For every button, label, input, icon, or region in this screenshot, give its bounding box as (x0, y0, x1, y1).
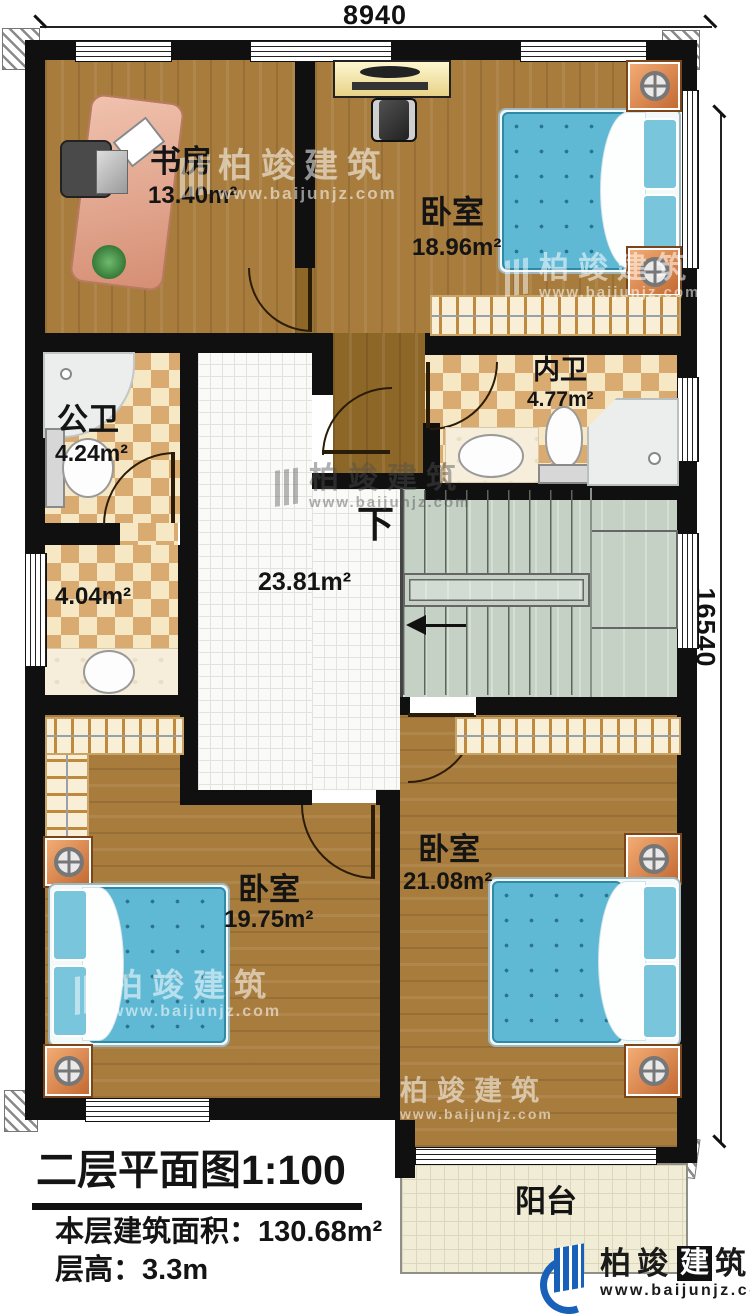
title-underline (32, 1203, 362, 1210)
nightstand (45, 1046, 91, 1096)
nightstand-knob (54, 1056, 84, 1086)
bed-pillow (642, 118, 678, 190)
wall-shared-bath-bottom (25, 523, 120, 545)
bed-duvet (600, 112, 646, 268)
window (250, 40, 392, 62)
stair-landing (403, 573, 590, 607)
bedroom-top-label: 卧室 (420, 196, 484, 228)
study-area: 13.40m² (148, 184, 237, 208)
floor-plan: 8940 16540 (0, 0, 750, 1316)
shower-drain (60, 368, 72, 380)
shared-bath-label: 公卫 (57, 404, 119, 435)
wall-balcony-stub-right (655, 1147, 697, 1163)
wardrobe (455, 717, 681, 755)
nightstand (626, 835, 680, 883)
wall-between-bedrooms (380, 790, 400, 1098)
monitor (96, 150, 128, 194)
window (25, 553, 47, 667)
wall-study-right (295, 60, 315, 268)
sink (83, 650, 135, 694)
plan-title: 二层平面图1:100 (36, 1150, 346, 1191)
wardrobe (430, 295, 681, 336)
nightstand (628, 62, 680, 110)
window (520, 40, 647, 62)
ensuite-bath-label: 内卫 (533, 357, 587, 384)
stairs-down-label: 下 (357, 506, 394, 543)
stair-flight-upper (403, 490, 590, 573)
wall-shared-bath-right (180, 352, 198, 545)
chair (371, 98, 417, 142)
plan-title-text: 二层平面图 (36, 1147, 241, 1193)
brand-logo-icon (538, 1242, 592, 1304)
stair-rail (592, 530, 678, 629)
window (75, 40, 172, 62)
window (85, 1098, 210, 1122)
dressing-area: 4.04m² (55, 585, 131, 609)
floor-area-line: 本层建筑面积：130.68m² (55, 1218, 382, 1247)
bedroom-left-label: 卧室 (238, 874, 300, 905)
bed-pillow (642, 963, 678, 1039)
floor-height-line: 层高：3.3m (55, 1256, 208, 1285)
wardrobe (45, 717, 184, 755)
nightstand-knob (639, 844, 669, 874)
wall-hall-bottom (180, 790, 312, 805)
wall-corridor-stub (312, 333, 333, 395)
logo-building (554, 1243, 584, 1292)
dresser-tray (352, 82, 428, 90)
wall-stair-bottom (476, 697, 697, 715)
brand-logo: 柏竣 建 筑 www.baijunjz.com (538, 1242, 750, 1304)
wall-bottom-left (25, 1098, 400, 1120)
balcony-label: 阳台 (515, 1186, 577, 1217)
balcony-sliding-door (415, 1147, 657, 1165)
nightstand (626, 1046, 680, 1096)
logo-brand-part2: 建 (677, 1246, 712, 1281)
bedroom-right-area: 21.08m² (403, 870, 492, 894)
wall-corridor-bottom (312, 473, 430, 489)
logo-url: www.baijunjz.com (600, 1282, 750, 1300)
wall-dressing-right (178, 545, 198, 715)
sink (458, 434, 524, 478)
window (677, 533, 699, 649)
dresser-mirror (360, 66, 420, 78)
stair-flight-lower (403, 607, 590, 695)
ensuite-bath-area: 4.77m² (527, 389, 594, 410)
stair-direction-line (424, 624, 466, 627)
toilet-bowl (545, 406, 583, 468)
hall-area: 23.81m² (258, 570, 351, 595)
wardrobe (45, 753, 89, 839)
dimension-top-line (40, 26, 712, 28)
nightstand (628, 248, 680, 296)
window (677, 377, 699, 462)
bedroom-left-area: 19.75m² (224, 908, 313, 932)
shared-bath-area: 4.24m² (55, 442, 128, 465)
bedroom-top-area: 18.96m² (412, 236, 501, 260)
shared-bath-threshold (120, 523, 178, 545)
bed-pillow (52, 965, 88, 1037)
nightstand-knob (54, 847, 84, 877)
study-label: 书房 (150, 146, 212, 177)
stair-edge-line (400, 488, 403, 697)
plant (92, 245, 126, 279)
logo-brand-part3: 筑 (715, 1246, 746, 1282)
stair-direction-arrow (406, 615, 426, 635)
floor-area-value: 130.68m² (258, 1216, 382, 1248)
nightstand-knob (640, 71, 670, 101)
bed-pillow (642, 885, 678, 961)
plan-scale: 1:100 (241, 1147, 346, 1193)
wall-dressing-bottom (25, 695, 198, 715)
bed-pillow (52, 889, 88, 961)
bedroom-right-label: 卧室 (418, 834, 480, 865)
toilet-tank (538, 464, 590, 484)
logo-brand-part1: 柏竣 (600, 1246, 674, 1282)
nightstand-knob (640, 257, 670, 287)
nightstand (45, 838, 91, 886)
floor-height-label: 层高： (55, 1254, 142, 1286)
shower-drain (648, 452, 661, 465)
wall-study-bottom (25, 333, 315, 353)
floor-area-label: 本层建筑面积： (55, 1216, 258, 1248)
wall-ensuite-left (423, 423, 440, 483)
nightstand-knob (639, 1056, 669, 1086)
wall-balcony-stub-left (395, 1120, 415, 1178)
wall-bedroom-top-bottom (425, 333, 697, 355)
floor-height-value: 3.3m (142, 1254, 208, 1286)
